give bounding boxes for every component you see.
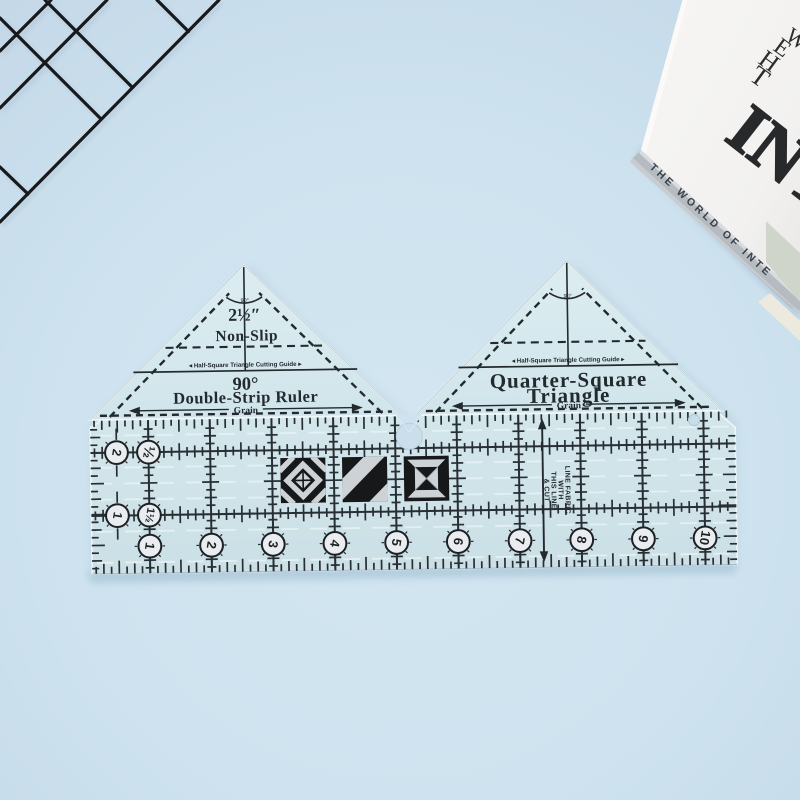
svg-text:10: 10: [697, 530, 714, 547]
svg-text:Grain: Grain: [234, 406, 259, 416]
svg-text:Double-Strip Ruler: Double-Strip Ruler: [173, 387, 318, 408]
svg-text:90°: 90°: [241, 298, 249, 304]
svg-text:WITH: WITH: [556, 480, 563, 500]
svg-text:1½: 1½: [142, 507, 156, 524]
svg-text:LINE FABRIC: LINE FABRIC: [563, 466, 571, 514]
svg-text:Grain: Grain: [557, 401, 582, 411]
svg-text:½: ½: [139, 445, 158, 460]
svg-text:& CUT: & CUT: [542, 478, 549, 502]
svg-text:2½″: 2½″: [228, 304, 261, 324]
svg-text:THIS LINE: THIS LINE: [549, 471, 557, 509]
svg-text:90°: 90°: [564, 294, 572, 300]
svg-text:Non-Slip: Non-Slip: [215, 327, 278, 345]
